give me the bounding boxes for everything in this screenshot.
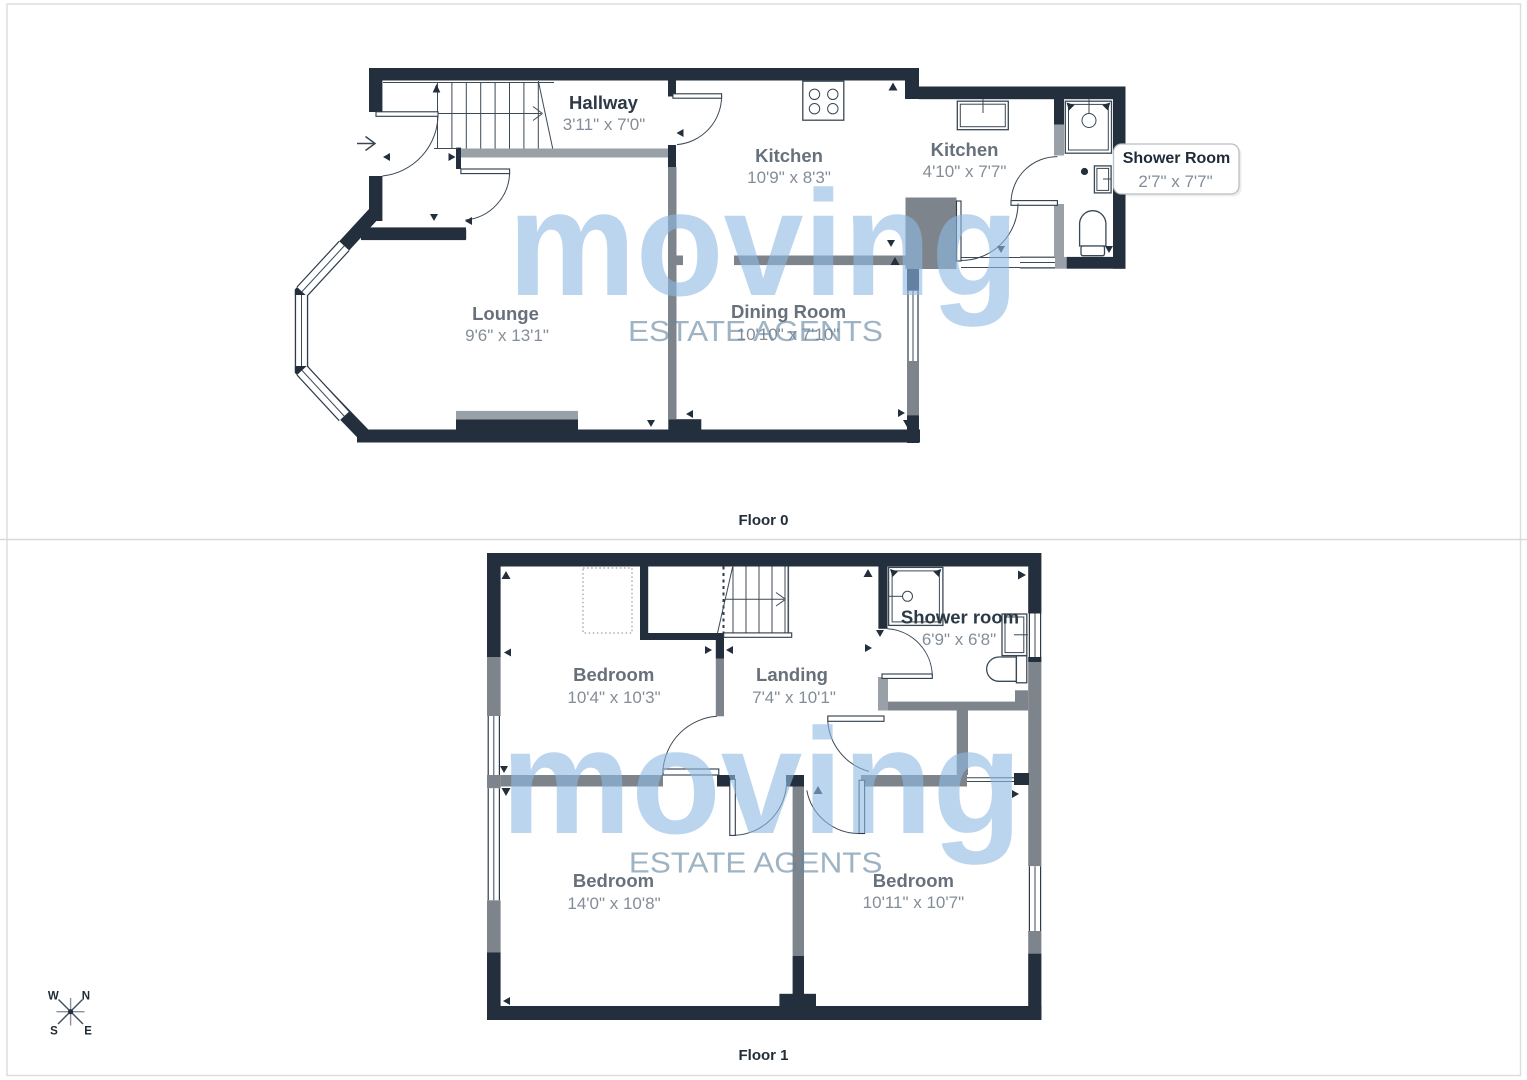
svg-text:Bedroom: Bedroom [573, 870, 654, 891]
svg-text:Kitchen: Kitchen [755, 145, 823, 166]
svg-text:Kitchen: Kitchen [931, 139, 999, 160]
svg-text:2'7" x 7'7": 2'7" x 7'7" [1138, 172, 1212, 191]
svg-text:10'11" x 10'7": 10'11" x 10'7" [863, 893, 964, 912]
svg-text:ESTATE AGENTS: ESTATE AGENTS [629, 848, 883, 880]
svg-text:9'6" x 13'1": 9'6" x 13'1" [465, 326, 549, 345]
svg-text:Bedroom: Bedroom [573, 664, 654, 685]
svg-text:Shower room: Shower room [901, 607, 1019, 628]
svg-text:S: S [50, 1026, 58, 1038]
svg-text:Dining Room: Dining Room [731, 301, 846, 322]
svg-text:N: N [82, 991, 90, 1003]
svg-text:4'10" x 7'7": 4'10" x 7'7" [923, 162, 1007, 181]
svg-text:Hallway: Hallway [569, 92, 639, 113]
svg-text:10'4" x 10'3": 10'4" x 10'3" [567, 688, 660, 707]
svg-text:Bedroom: Bedroom [873, 870, 954, 891]
svg-text:Landing: Landing [756, 664, 828, 685]
svg-text:Shower Room: Shower Room [1123, 150, 1231, 167]
svg-text:Floor 1: Floor 1 [738, 1047, 788, 1064]
svg-text:E: E [84, 1026, 92, 1038]
svg-text:7'4" x 10'1": 7'4" x 10'1" [752, 688, 836, 707]
svg-text:W: W [48, 991, 59, 1003]
svg-text:moving: moving [501, 697, 1022, 865]
svg-text:6'9" x 6'8": 6'9" x 6'8" [922, 630, 996, 649]
svg-text:14'0" x 10'8": 14'0" x 10'8" [567, 894, 660, 913]
svg-text:Lounge: Lounge [472, 303, 539, 324]
svg-text:3'11" x 7'0": 3'11" x 7'0" [563, 115, 646, 134]
svg-text:10'9" x 8'3": 10'9" x 8'3" [747, 168, 831, 187]
svg-text:Floor 0: Floor 0 [738, 512, 788, 529]
